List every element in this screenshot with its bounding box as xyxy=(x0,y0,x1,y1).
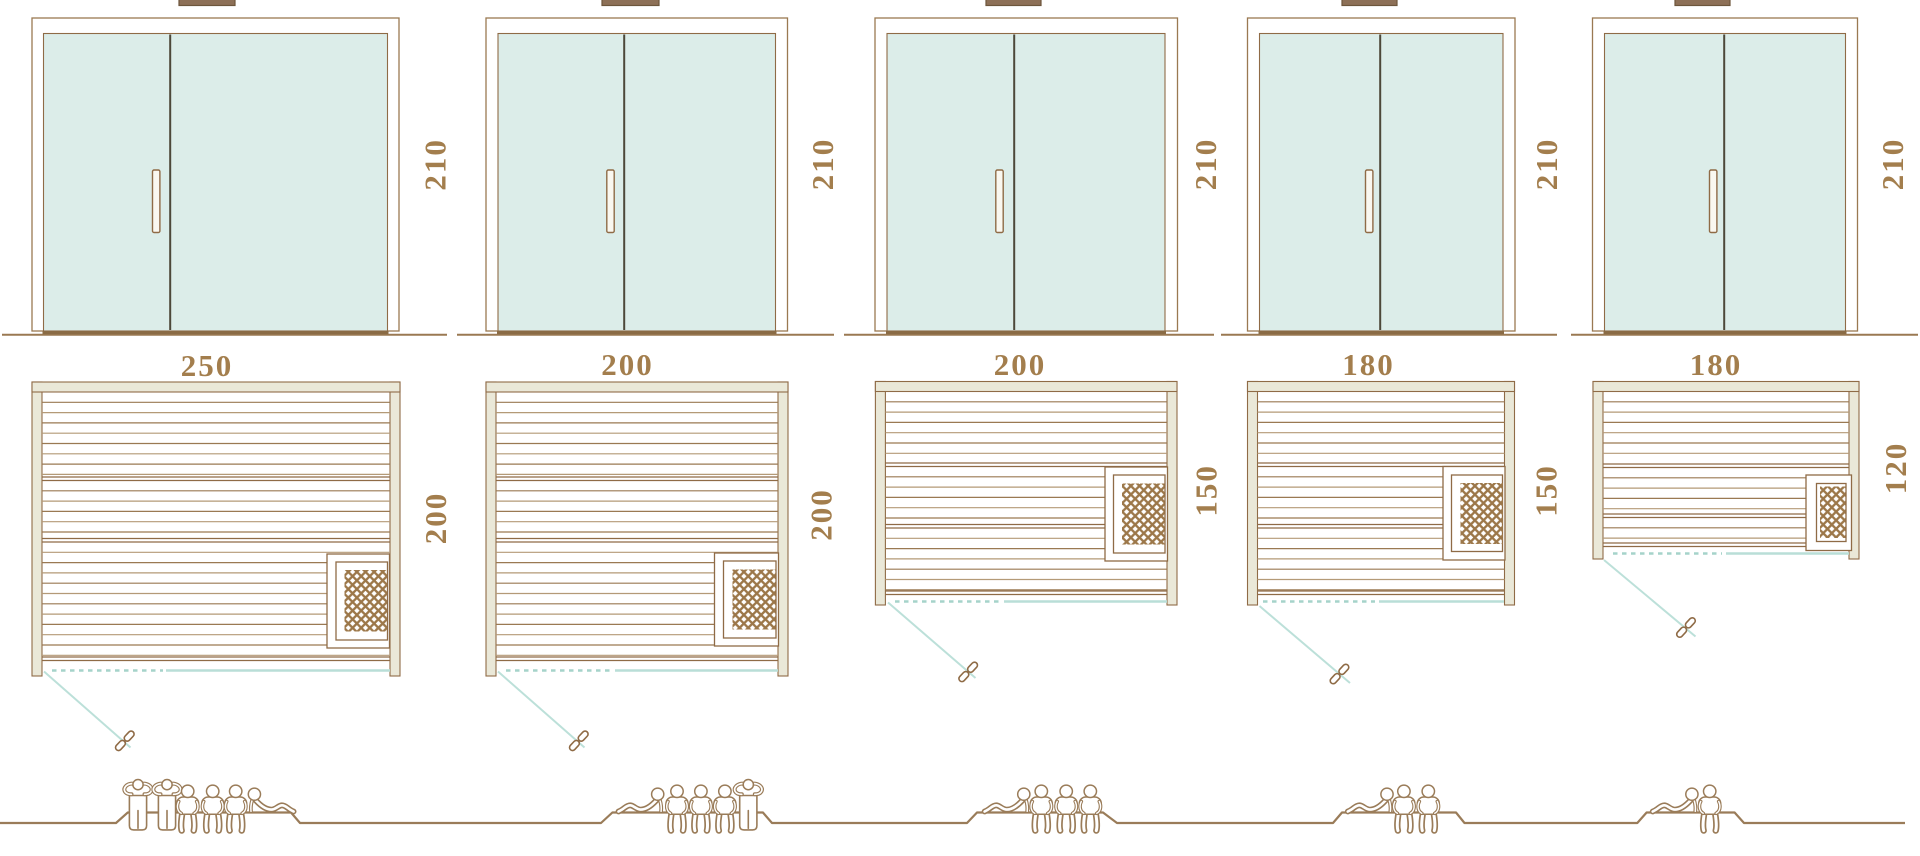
svg-text:200: 200 xyxy=(418,492,453,545)
svg-text:200: 200 xyxy=(601,347,654,382)
svg-text:150: 150 xyxy=(1189,464,1224,517)
svg-text:120: 120 xyxy=(1878,442,1913,495)
svg-text:210: 210 xyxy=(805,138,840,191)
svg-text:210: 210 xyxy=(1188,138,1223,191)
svg-text:180: 180 xyxy=(1342,347,1395,382)
svg-text:150: 150 xyxy=(1529,464,1564,517)
svg-text:200: 200 xyxy=(804,488,839,541)
svg-text:210: 210 xyxy=(1529,138,1564,191)
svg-text:250: 250 xyxy=(181,348,234,383)
svg-text:210: 210 xyxy=(418,138,453,191)
svg-text:180: 180 xyxy=(1690,347,1743,382)
svg-text:200: 200 xyxy=(994,347,1047,382)
svg-text:210: 210 xyxy=(1875,138,1910,191)
